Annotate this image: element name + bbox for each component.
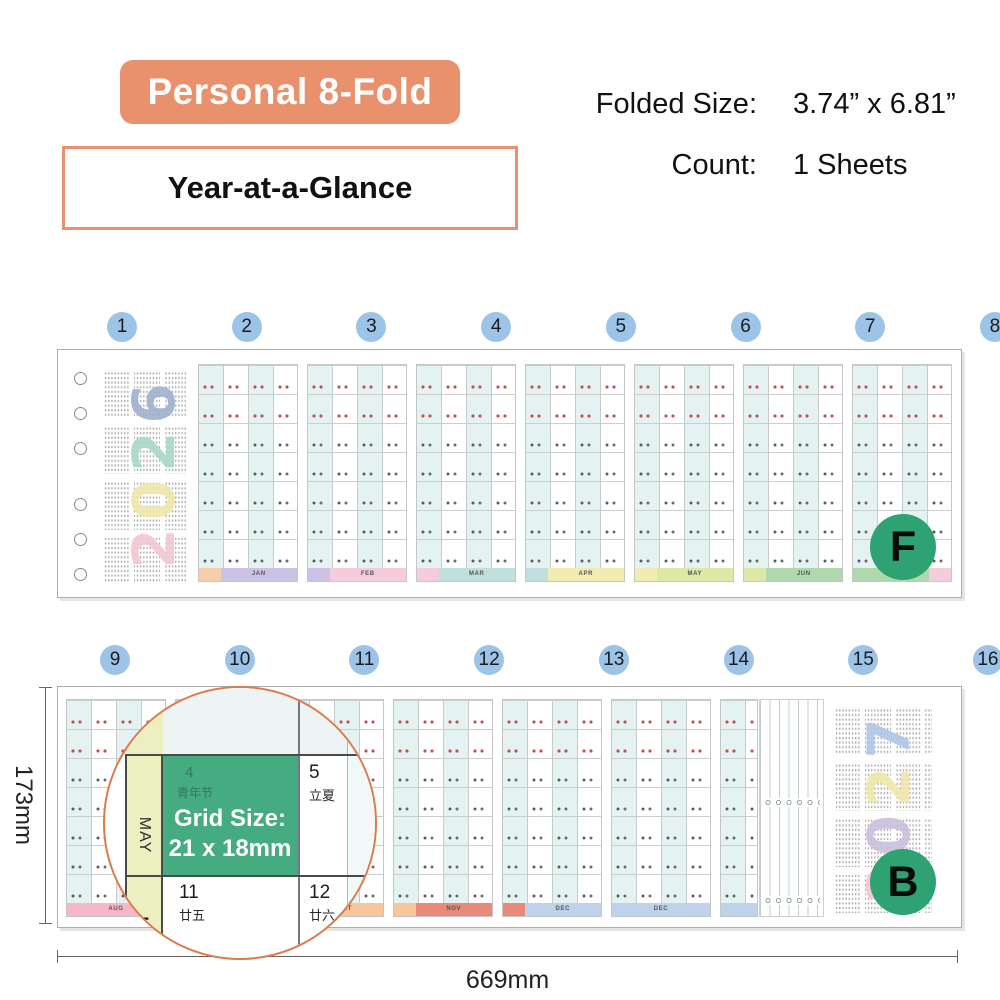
- footer-month-label: FEB: [330, 568, 406, 581]
- footer-segment: DEC: [612, 903, 710, 916]
- year-digit: 2: [855, 759, 923, 807]
- footer-segment: [503, 903, 525, 916]
- month-footer: JAN: [199, 568, 297, 581]
- month-footer: JUN: [744, 568, 842, 581]
- punch-dots-row: [763, 896, 820, 905]
- panel-number-circle: 10: [225, 645, 255, 675]
- panel-number-circle: 9: [100, 645, 130, 675]
- panel-number-circle: 13: [599, 645, 629, 675]
- month-panel: [720, 699, 758, 917]
- magnifier-top-cells: [163, 688, 375, 754]
- footer-segment: DEC: [525, 903, 601, 916]
- footer-segment: [744, 568, 766, 581]
- year-digit: 0: [855, 807, 923, 855]
- footer-month-label: MAY: [657, 568, 733, 581]
- month-footer: MAY: [635, 568, 733, 581]
- month-panel: MAY: [634, 364, 734, 582]
- month-grid: [635, 365, 733, 568]
- product-infographic: Personal 8-Fold Year-at-a-Glance Folded …: [0, 0, 1000, 1000]
- cell-day: 4: [185, 764, 193, 781]
- specs: Folded Size: 3.74” x 6.81” Count: 1 Shee…: [545, 88, 985, 210]
- title-badge: Personal 8-Fold: [120, 60, 460, 124]
- cell-day: 12: [309, 882, 335, 904]
- month-panel: DEC: [611, 699, 711, 917]
- year-digit: 7: [855, 710, 923, 758]
- month-panel: APR: [525, 364, 625, 582]
- footer-segment: JAN: [221, 568, 297, 581]
- footer-month-label: APR: [548, 568, 624, 581]
- notes-lines-panel: [759, 699, 824, 917]
- month-panel: MAR: [416, 364, 516, 582]
- grid-cell: 5 立夏: [309, 762, 335, 804]
- month-grid: [308, 365, 406, 568]
- spec-label: Folded Size:: [545, 88, 757, 121]
- cell-note: 廿六: [309, 905, 335, 924]
- binder-hole: [74, 533, 87, 546]
- binder-hole: [74, 498, 87, 511]
- footer-segment: [526, 568, 548, 581]
- cover-year-2026: 2026: [120, 375, 188, 568]
- month-footer: MAR: [417, 568, 515, 581]
- width-dimension-line: 669mm: [57, 956, 958, 957]
- grid-size-label: Grid Size:: [174, 805, 286, 832]
- binder-hole: [74, 372, 87, 385]
- month-grid: [526, 365, 624, 568]
- back-side-badge: B: [870, 849, 936, 915]
- footer-segment: [929, 568, 951, 581]
- panel-number-circle: 15: [848, 645, 878, 675]
- month-grid: [612, 700, 710, 903]
- footer-segment: JUN: [766, 568, 842, 581]
- grid-size-callout: Grid Size: 21 x 18mm: [141, 804, 319, 864]
- panel-number-circle: 16: [973, 645, 1000, 675]
- month-panel: JUN: [743, 364, 843, 582]
- footer-segment: [417, 568, 439, 581]
- spec-row-folded-size: Folded Size: 3.74” x 6.81”: [545, 88, 985, 121]
- month-grid: [417, 365, 515, 568]
- footer-segment: APR: [548, 568, 624, 581]
- month-footer: APR: [526, 568, 624, 581]
- month-footer: NOV: [394, 903, 492, 916]
- footer-month-label: JUN: [766, 568, 842, 581]
- back-panel-number-row: 910111213141516: [57, 645, 1000, 675]
- subtitle-box: Year-at-a-Glance: [62, 146, 518, 230]
- footer-segment: MAR: [439, 568, 515, 581]
- year-digit: 0: [120, 472, 188, 520]
- panel-number-circle: 2: [232, 312, 262, 342]
- footer-month-label: DEC: [612, 903, 710, 916]
- month-panel: DEC: [502, 699, 602, 917]
- front-calendar-strip: 2026 JANFEBMARAPRMAYJUNJUL F: [57, 349, 962, 598]
- binder-hole: [74, 568, 87, 581]
- month-grid: [721, 700, 757, 903]
- panel-number-circle: 8: [980, 312, 1000, 342]
- footer-segment: NOV: [416, 903, 492, 916]
- cell-day: 5: [309, 762, 335, 784]
- spec-row-count: Count: 1 Sheets: [545, 149, 985, 182]
- year-digit: 2: [120, 424, 188, 472]
- panel-number-circle: 3: [356, 312, 386, 342]
- magnifier-right-column: [347, 688, 377, 958]
- cell-day: 11: [179, 882, 205, 904]
- panel-number-circle: 1: [107, 312, 137, 342]
- footer-month-label: JAN: [221, 568, 297, 581]
- year-digit: 6: [120, 375, 188, 423]
- month-grid: [199, 365, 297, 568]
- footer-segment: MAY: [657, 568, 733, 581]
- spec-value: 3.74” x 6.81”: [757, 88, 956, 121]
- footer-month-label: NOV: [416, 903, 492, 916]
- month-footer: DEC: [503, 903, 601, 916]
- cover-panel-2026: 2026: [58, 350, 190, 597]
- footer-month-label: MAR: [439, 568, 515, 581]
- panel-number-circle: 7: [855, 312, 885, 342]
- binder-hole: [74, 407, 87, 420]
- month-footer: DEC: [612, 903, 710, 916]
- spec-label: Count:: [545, 149, 757, 182]
- cell-note: 廿五: [179, 905, 205, 924]
- height-dimension-label: 173mm: [11, 750, 37, 860]
- cell-note: 立夏: [309, 785, 335, 804]
- panel-number-circle: 5: [606, 312, 636, 342]
- month-grid: [394, 700, 492, 903]
- month-footer: [721, 903, 757, 916]
- month-panel: NOV: [393, 699, 493, 917]
- width-dimension-label: 669mm: [57, 966, 958, 995]
- grid-cell: 11 廿五: [179, 882, 205, 924]
- grid-size-magnifier: 4 青年节 5 立夏 11 廿五 12 廿六 MAY 5 Grid Size: …: [103, 686, 377, 960]
- front-side-badge: F: [870, 514, 936, 580]
- year-digit: 2: [120, 520, 188, 568]
- footer-segment: [721, 903, 757, 916]
- punch-dots-row: [763, 798, 820, 807]
- band-month-number: 5: [125, 914, 163, 938]
- month-grid: [744, 365, 842, 568]
- panel-number-circle: 4: [481, 312, 511, 342]
- grid-size-value: 21 x 18mm: [169, 835, 292, 862]
- spec-value: 1 Sheets: [757, 149, 907, 182]
- panel-number-circle: 11: [349, 645, 379, 675]
- binder-hole: [74, 442, 87, 455]
- panel-number-circle: 14: [724, 645, 754, 675]
- footer-segment: [199, 568, 221, 581]
- panel-number-circle: 12: [474, 645, 504, 675]
- month-grid: [503, 700, 601, 903]
- month-panel: FEB: [307, 364, 407, 582]
- footer-segment: [308, 568, 330, 581]
- height-dimension-line: 173mm: [45, 687, 46, 924]
- footer-segment: [394, 903, 416, 916]
- month-panel: JAN: [198, 364, 298, 582]
- month-footer: FEB: [308, 568, 406, 581]
- grid-line: [347, 688, 348, 958]
- footer-month-label: DEC: [525, 903, 601, 916]
- front-panel-number-row: 12345678: [57, 312, 1000, 342]
- cell-note: 青年节: [177, 784, 213, 801]
- binder-holes-left: [74, 350, 87, 597]
- footer-segment: FEB: [330, 568, 406, 581]
- grid-cell: 12 廿六: [309, 882, 335, 924]
- footer-segment: [635, 568, 657, 581]
- panel-number-circle: 6: [731, 312, 761, 342]
